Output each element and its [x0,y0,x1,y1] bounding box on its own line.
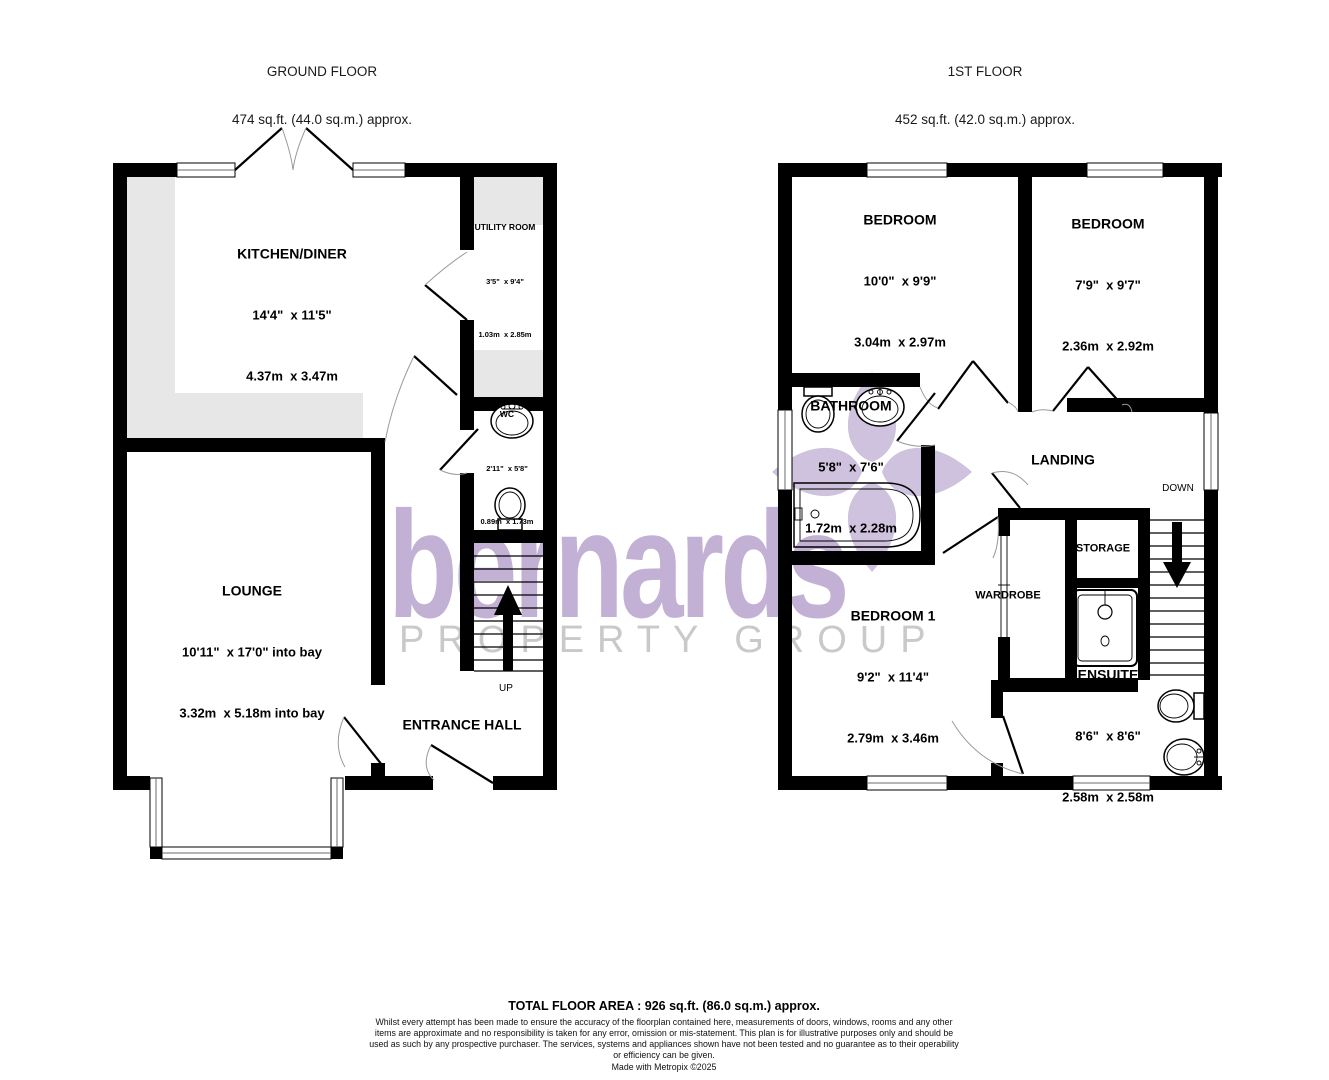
lounge-door [338,717,382,767]
kitchen-window-right [353,163,405,177]
wc-door [440,429,478,474]
room-label-wc: WC 2'11" x 5'8" 0.89m x 1.73m [481,366,534,570]
footer: TOTAL FLOOR AREA : 926 sq.ft. (86.0 sq.m… [369,999,959,1072]
room-label-lounge: LOUNGE 10'11" x 17'0" into bay 3.32m x 5… [179,539,324,766]
room-label-bedroom-b: BEDROOM 7'9" x 9'7" 2.36m x 2.92m [1062,172,1154,399]
bay-window [150,778,343,859]
floorplan-page: bernards PROPERTY GROUP GROUND FLOOR 474… [0,0,1329,1080]
room-label-landing: LANDING [1031,407,1095,512]
landing-window [1204,413,1218,490]
room-label-kitchen-diner: KITCHEN/DINER 14'4" x 11'5" 4.37m x 3.47… [237,202,347,429]
total-floor-area: TOTAL FLOOR AREA : 926 sq.ft. (86.0 sq.m… [369,999,959,1013]
ensuite-door [952,716,1023,774]
patio-doors [235,128,353,170]
kitchen-window-left [177,163,235,177]
bathroom-window [778,410,792,490]
stairs-down-label: DOWN [1162,439,1194,539]
stairs-up-label: UP [497,639,515,739]
room-label-storage: STORAGE [1076,498,1130,599]
kitchen-door [385,356,457,442]
room-label-bathroom: BATHROOM 5'8" x 7'6" 1.72m x 2.28m [805,354,897,581]
ground-floor-title: GROUND FLOOR [232,64,412,80]
room-label-utility: UTILITY ROOM 3'5" x 9'4" 1.03m x 2.85m [475,179,536,383]
stairs-down [1150,520,1204,675]
metropix-credit: Made with Metropix ©2025 [369,1062,959,1072]
utility-door [425,252,467,320]
room-label-bedroom-1: BEDROOM 1 9'2" x 11'4" 2.79m x 3.46m [847,564,939,791]
storage-door [992,472,1028,509]
first-floor-title: 1ST FLOOR [895,64,1075,80]
disclaimer-text: Whilst every attempt has been made to en… [369,1017,959,1061]
ensuite-sink-icon [1164,739,1204,775]
room-label-wardrobe: WARDROBE [975,545,1040,646]
room-label-ensuite: ENSUITE 8'6" x 8'6" 2.58m x 2.58m [1062,623,1154,850]
ensuite-toilet-icon [1158,690,1204,722]
